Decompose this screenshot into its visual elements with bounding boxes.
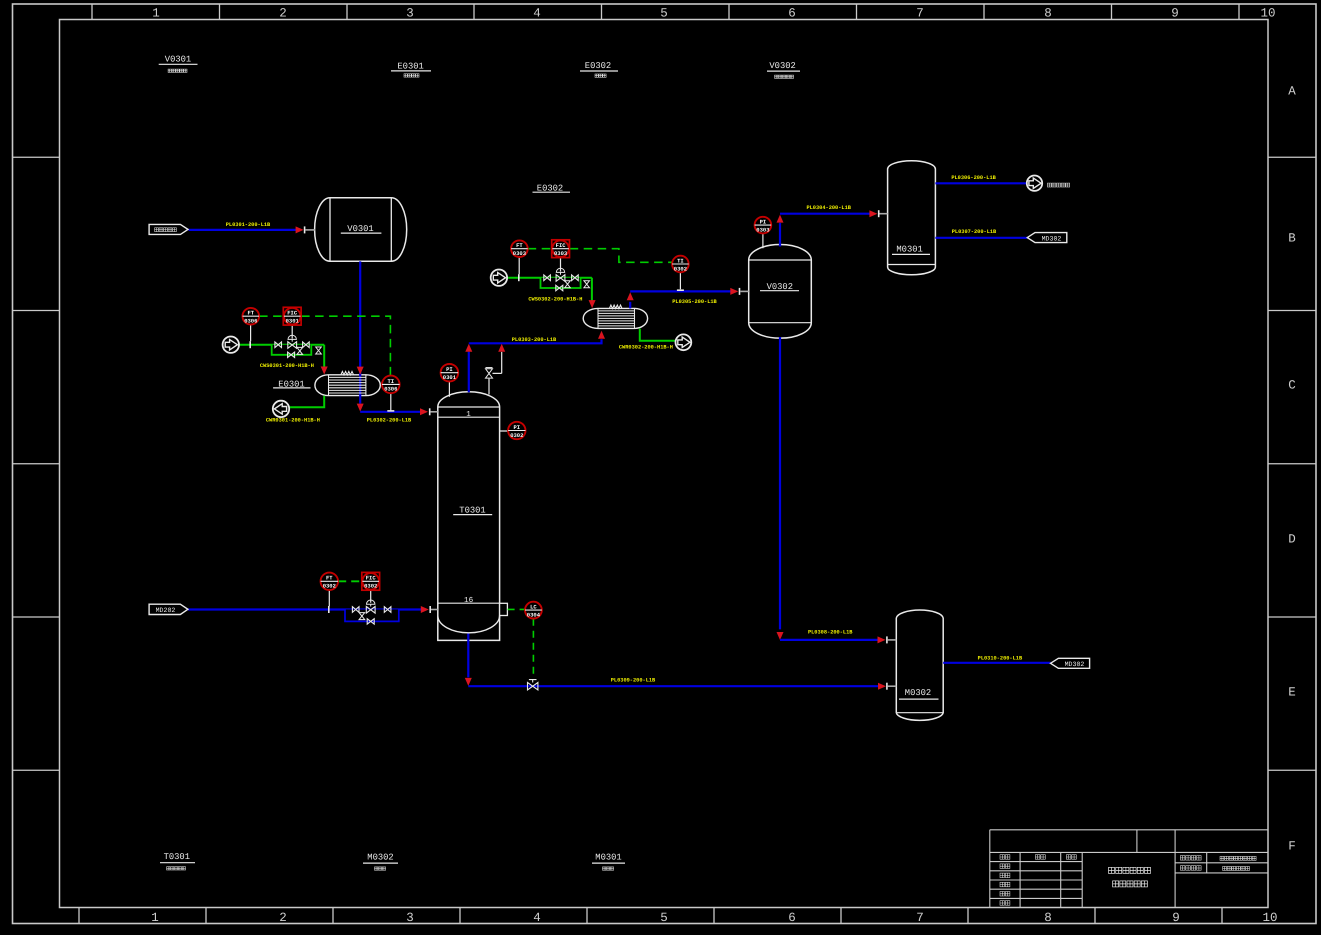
svg-text:4: 4 <box>533 7 541 21</box>
svg-text:MD302: MD302 <box>1065 661 1085 668</box>
svg-text:3: 3 <box>406 911 414 925</box>
svg-text:PL0305-200-L1B: PL0305-200-L1B <box>672 299 717 305</box>
svg-text:0303: 0303 <box>513 250 527 257</box>
svg-text:FIC: FIC <box>287 310 298 317</box>
svg-text:7: 7 <box>916 911 924 925</box>
svg-text:1: 1 <box>151 911 159 925</box>
svg-text:2: 2 <box>279 7 287 21</box>
svg-text:8: 8 <box>1044 911 1052 925</box>
svg-text:0301: 0301 <box>443 374 457 381</box>
svg-text:10: 10 <box>1260 7 1275 21</box>
svg-text:TI: TI <box>677 257 684 264</box>
svg-text:CWR0302-200-H1B-H: CWR0302-200-H1B-H <box>619 344 673 350</box>
svg-text:3: 3 <box>406 7 414 21</box>
svg-text:0302: 0302 <box>364 583 377 590</box>
svg-text:V0302: V0302 <box>769 61 795 71</box>
svg-text:6: 6 <box>788 7 796 21</box>
svg-text:0306: 0306 <box>244 318 257 325</box>
svg-text:FT: FT <box>326 575 333 582</box>
svg-text:FIC: FIC <box>556 242 567 249</box>
svg-text:PI: PI <box>446 366 453 373</box>
svg-text:1: 1 <box>466 411 471 419</box>
svg-text:PL0307-200-L1B: PL0307-200-L1B <box>952 229 997 235</box>
svg-text:MD202: MD202 <box>156 607 176 614</box>
svg-text:E0302: E0302 <box>585 61 611 71</box>
svg-text:10: 10 <box>1262 911 1277 925</box>
svg-text:1: 1 <box>152 7 160 21</box>
svg-text:B: B <box>1288 232 1296 246</box>
svg-text:LC: LC <box>530 604 537 611</box>
svg-text:PI: PI <box>513 424 520 431</box>
svg-text:FT: FT <box>516 242 523 249</box>
svg-text:0303: 0303 <box>756 226 770 233</box>
svg-text:PL0303-200-L1B: PL0303-200-L1B <box>512 337 557 343</box>
svg-text:8: 8 <box>1044 7 1052 21</box>
svg-text:E: E <box>1288 686 1296 700</box>
svg-text:M0302: M0302 <box>367 853 393 863</box>
svg-text:7: 7 <box>916 7 924 21</box>
svg-text:F: F <box>1288 840 1296 854</box>
svg-text:M0302: M0302 <box>905 688 931 698</box>
svg-text:M0301: M0301 <box>896 244 922 254</box>
svg-text:PL0301-200-L1B: PL0301-200-L1B <box>226 222 271 228</box>
svg-text:FIC: FIC <box>366 575 377 582</box>
svg-text:6: 6 <box>788 911 796 925</box>
svg-text:PL0306-200-L1B: PL0306-200-L1B <box>951 175 996 181</box>
svg-text:PL0308-200-L1B: PL0308-200-L1B <box>808 630 853 636</box>
svg-text:0302: 0302 <box>323 583 336 590</box>
svg-text:0304: 0304 <box>527 611 541 618</box>
svg-text:0302: 0302 <box>674 265 687 272</box>
svg-text:MD302: MD302 <box>1042 235 1062 242</box>
svg-text:D: D <box>1288 533 1296 547</box>
svg-text:PL0309-200-L1B: PL0309-200-L1B <box>611 678 656 684</box>
svg-text:2: 2 <box>279 911 287 925</box>
svg-text:M0301: M0301 <box>595 853 621 863</box>
svg-text:V0301: V0301 <box>165 54 191 64</box>
svg-text:0303: 0303 <box>554 250 568 257</box>
svg-text:C: C <box>1288 379 1296 393</box>
svg-text:CWS0302-200-H1B-H: CWS0302-200-H1B-H <box>528 296 582 302</box>
svg-text:PI: PI <box>760 219 767 226</box>
svg-text:CWR0301-200-H1B-H: CWR0301-200-H1B-H <box>266 417 320 423</box>
svg-text:5: 5 <box>660 7 668 21</box>
svg-text:PL0310-200-L1B: PL0310-200-L1B <box>978 656 1023 662</box>
svg-text:0301: 0301 <box>286 318 300 325</box>
svg-text:PL0302-200-L1B: PL0302-200-L1B <box>367 417 412 423</box>
svg-text:16: 16 <box>464 596 474 605</box>
svg-text:0302: 0302 <box>510 432 523 439</box>
svg-text:9: 9 <box>1172 911 1180 925</box>
svg-text:5: 5 <box>660 911 668 925</box>
svg-text:0306: 0306 <box>384 386 397 393</box>
svg-text:TI: TI <box>387 378 394 385</box>
svg-text:FT: FT <box>247 310 254 317</box>
svg-text:4: 4 <box>533 911 541 925</box>
svg-text:E0301: E0301 <box>397 62 423 72</box>
svg-text:CWS0301-200-H1B-H: CWS0301-200-H1B-H <box>260 363 314 369</box>
svg-text:T0301: T0301 <box>164 852 190 862</box>
svg-text:PL0304-200-L1B: PL0304-200-L1B <box>806 205 851 211</box>
svg-text:9: 9 <box>1171 7 1179 21</box>
svg-text:A: A <box>1288 85 1296 99</box>
